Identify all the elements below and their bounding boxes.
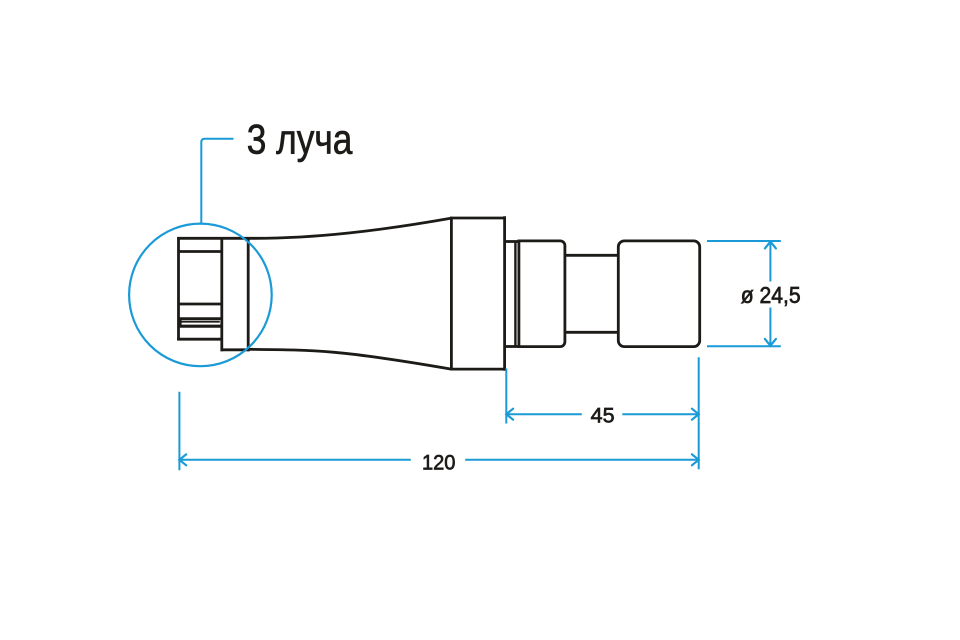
svg-text:ø 24,5: ø 24,5 <box>741 282 801 308</box>
svg-text:120: 120 <box>422 450 456 474</box>
svg-text:45: 45 <box>591 403 615 427</box>
svg-text:3 луча: 3 луча <box>247 115 353 162</box>
